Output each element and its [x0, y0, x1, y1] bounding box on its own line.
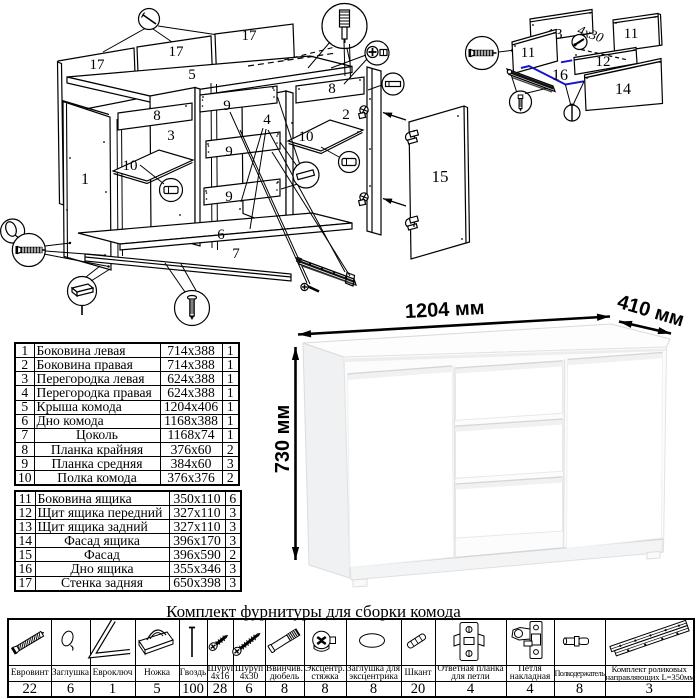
svg-text:10: 10 [123, 158, 138, 174]
svg-text:410 мм: 410 мм [615, 291, 687, 332]
svg-text:1204 мм: 1204 мм [404, 297, 485, 323]
svg-text:17: 17 [242, 28, 258, 44]
svg-text:15: 15 [432, 167, 449, 186]
svg-text:10: 10 [299, 129, 314, 145]
svg-text:14: 14 [615, 81, 631, 98]
svg-text:8: 8 [328, 81, 336, 97]
svg-text:12: 12 [596, 54, 611, 70]
svg-text:17: 17 [169, 44, 185, 60]
svg-text:11: 11 [624, 26, 638, 42]
svg-text:9: 9 [225, 189, 233, 205]
svg-text:17: 17 [90, 57, 106, 73]
svg-text:16: 16 [552, 67, 568, 84]
svg-text:6: 6 [217, 227, 225, 243]
svg-text:9: 9 [225, 144, 233, 160]
svg-text:4: 4 [263, 112, 271, 128]
svg-text:7: 7 [232, 246, 240, 262]
svg-text:8: 8 [153, 108, 161, 124]
svg-text:3: 3 [167, 128, 175, 144]
svg-text:1: 1 [81, 171, 89, 188]
svg-text:5: 5 [188, 67, 196, 83]
svg-text:9: 9 [223, 98, 231, 114]
svg-text:11: 11 [521, 45, 535, 61]
svg-text:2: 2 [342, 107, 350, 123]
svg-text:730 мм: 730 мм [272, 405, 294, 474]
